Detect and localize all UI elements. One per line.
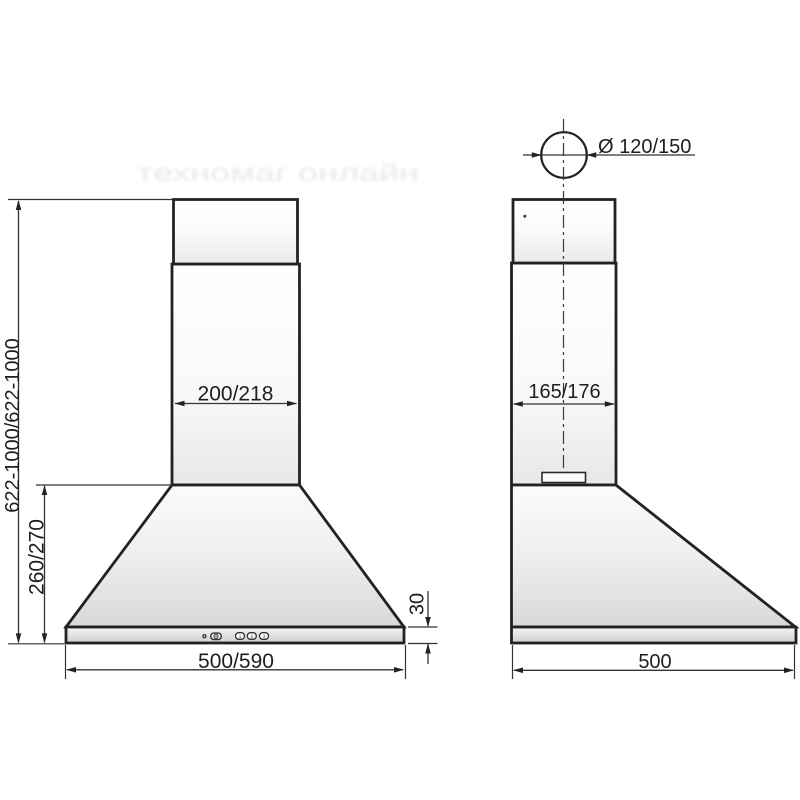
svg-text:2: 2 [251,634,254,639]
svg-text:165/176: 165/176 [528,381,600,403]
svg-text:622-1000/622-1000: 622-1000/622-1000 [2,338,24,513]
svg-text:30: 30 [407,593,429,615]
svg-text:техномаг онлайн: техномаг онлайн [137,160,419,187]
svg-text:200/218: 200/218 [198,383,274,406]
svg-text:Ø 120/150: Ø 120/150 [598,136,691,158]
svg-text:260/270: 260/270 [26,519,49,595]
svg-text:500: 500 [638,651,671,673]
svg-text:3: 3 [263,634,266,639]
svg-text:1: 1 [239,634,242,639]
svg-text:500/590: 500/590 [198,650,274,673]
